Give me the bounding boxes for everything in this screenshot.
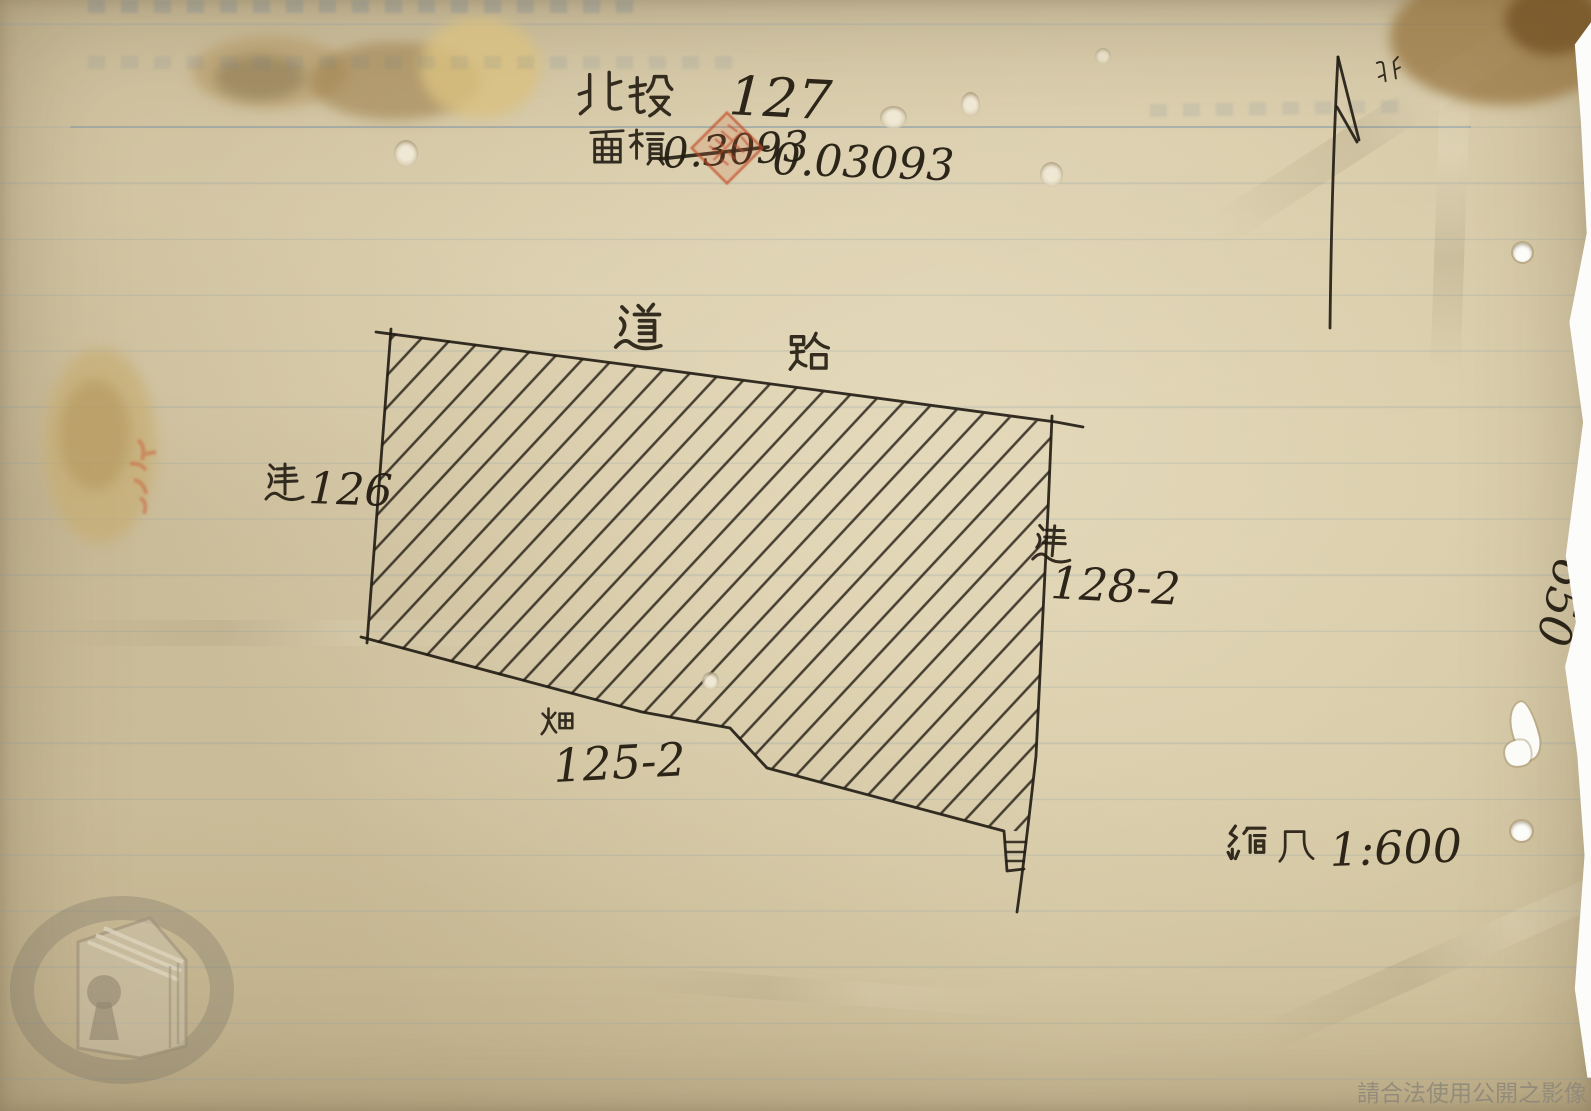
north-label-glyph	[1376, 57, 1401, 82]
left-parcel-number: 126	[308, 463, 394, 517]
paper-dent	[394, 140, 418, 167]
ink-drawing-layer: 127 0.3093 0.03093	[0, 0, 1591, 1111]
punch-hole	[1513, 243, 1532, 262]
bottom-parcel-number: 125-2	[552, 732, 687, 793]
right-parcel-number: 128-2	[1049, 556, 1181, 616]
area-corrected-value: 0.03093	[772, 134, 956, 191]
paper-dent	[702, 672, 719, 690]
bottom-parcel-type-glyph	[542, 709, 573, 735]
district-name-glyphs	[579, 72, 671, 115]
road-label-glyphs	[616, 305, 829, 370]
scale-ratio-text: 1:600	[1328, 818, 1462, 877]
paper-dent	[1095, 48, 1111, 64]
scanned-cadastral-sheet: 127 0.3093 0.03093	[0, 0, 1591, 1111]
red-seal-smudge	[130, 440, 156, 514]
scale-label-glyphs	[1228, 826, 1313, 861]
library-watermark-logo	[22, 908, 222, 1072]
paper-dent	[961, 92, 980, 117]
area-label-glyphs	[591, 130, 663, 164]
paper-dent	[1040, 162, 1063, 187]
north-arrow	[1330, 57, 1359, 328]
punch-hole	[1511, 821, 1532, 841]
left-parcel-type-glyph	[266, 464, 303, 500]
footer-watermark-text: 請合法使用公開之影像	[1357, 1074, 1587, 1108]
paper-dent	[880, 106, 907, 129]
